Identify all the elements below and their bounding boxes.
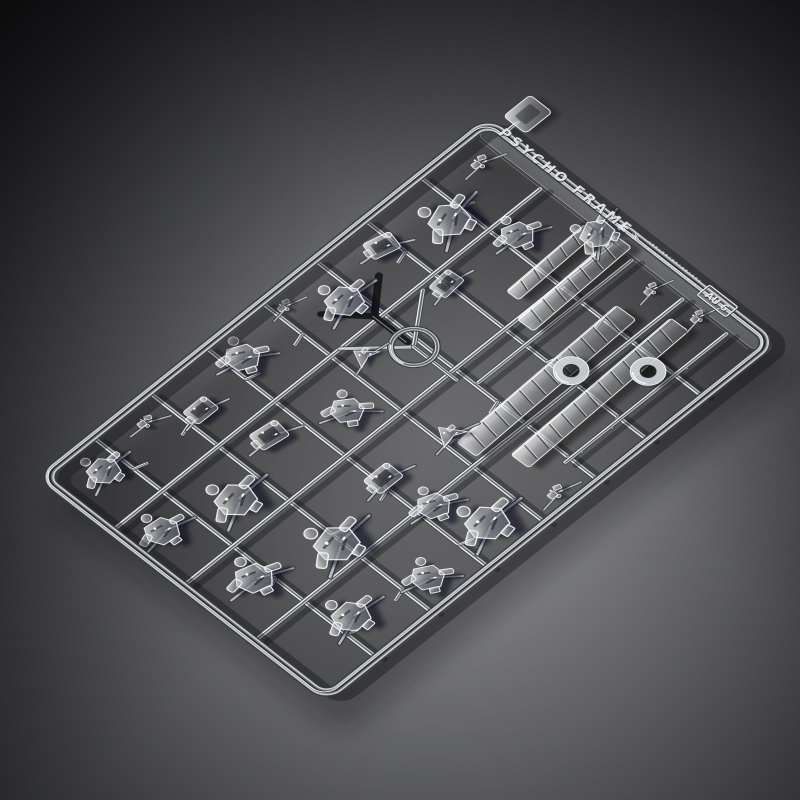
product-photo: PSYCHO FRAMEPSYCHO FRAME◈✳AU 6AU 6 [0,0,800,800]
render-root: PSYCHO FRAMEPSYCHO FRAME◈✳AU 6AU 6 [0,0,800,800]
sprue-photo-svg: PSYCHO FRAMEPSYCHO FRAME◈✳AU 6AU 6 [0,0,800,800]
photo-stage: PSYCHO FRAMEPSYCHO FRAME◈✳AU 6AU 6 [0,0,800,800]
